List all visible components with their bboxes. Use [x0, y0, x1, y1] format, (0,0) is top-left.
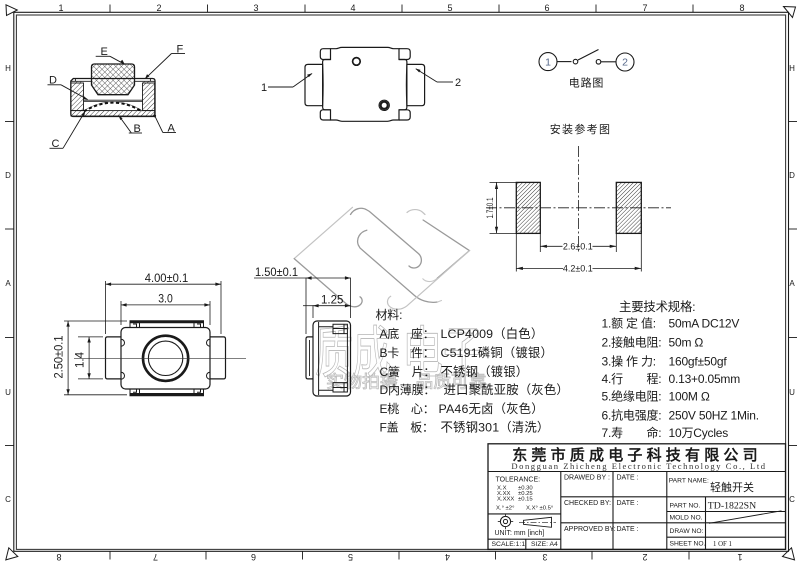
svg-text:TD-1822SN: TD-1822SN: [708, 500, 756, 511]
svg-text:C: C: [789, 495, 795, 504]
svg-text:APPROVED BY:: APPROVED BY:: [564, 526, 616, 533]
svg-text:A: A: [789, 279, 795, 288]
svg-text:1: 1: [737, 552, 742, 562]
svg-text:1.25: 1.25: [321, 295, 343, 307]
svg-text:0.13+0.05mm: 0.13+0.05mm: [669, 372, 741, 386]
svg-text:F盖 板：: F盖 板：: [380, 421, 434, 435]
svg-text:1 OF 1: 1 OF 1: [713, 541, 732, 548]
svg-text:安装参考图: 安装参考图: [550, 122, 612, 136]
svg-text:UNIT: mm [inch]: UNIT: mm [inch]: [495, 530, 545, 537]
svg-text:2: 2: [642, 552, 647, 562]
svg-text:1: 1: [545, 56, 551, 68]
svg-text:DATE :: DATE :: [617, 500, 639, 507]
svg-text:3: 3: [253, 3, 258, 13]
svg-text:7: 7: [153, 552, 158, 562]
svg-text:8: 8: [739, 3, 744, 13]
svg-text:材料:: 材料:: [376, 308, 403, 322]
svg-text:X.° ±2°: X.° ±2°: [496, 506, 514, 512]
svg-text:D内薄膜：: D内薄膜：: [380, 382, 436, 397]
svg-text:1.额 定 值:: 1.额 定 值:: [602, 316, 656, 331]
svg-text:DATE :: DATE :: [617, 475, 639, 482]
svg-text:8: 8: [56, 552, 61, 562]
svg-text:10万Cycles: 10万Cycles: [669, 426, 729, 440]
svg-text:H: H: [5, 64, 11, 73]
svg-text:不锈钢（镀银）: 不锈钢（镀银）: [441, 364, 529, 379]
svg-text:4: 4: [445, 552, 450, 562]
svg-text:3.操 作 力:: 3.操 作 力:: [602, 354, 656, 369]
svg-text:2.50±0.1: 2.50±0.1: [54, 336, 66, 379]
svg-text:C簧 片：: C簧 片：: [380, 364, 436, 379]
svg-text:3: 3: [542, 552, 547, 562]
svg-text:X.XXX: X.XXX: [497, 497, 514, 503]
svg-text:SCALE:1:1: SCALE:1:1: [492, 541, 526, 548]
svg-text:2.6±0.1: 2.6±0.1: [563, 242, 593, 252]
svg-text:X.X° ±0.5°: X.X° ±0.5°: [526, 506, 553, 512]
svg-text:B卡 件：: B卡 件：: [380, 346, 435, 360]
svg-text:4.00±0.1: 4.00±0.1: [145, 273, 189, 285]
svg-text:1.4: 1.4: [75, 351, 87, 368]
svg-text:Dongguan Zhicheng Electronic T: Dongguan Zhicheng Electronic Technology …: [511, 461, 766, 471]
svg-text:进口聚酰亚胺（灰色）: 进口聚酰亚胺（灰色）: [444, 382, 569, 397]
svg-text:主要技术规格:: 主要技术规格:: [619, 299, 695, 314]
svg-text:H: H: [789, 64, 795, 73]
svg-text:DRAWED BY :: DRAWED BY :: [564, 475, 610, 482]
svg-text:50mA DC12V: 50mA DC12V: [669, 317, 740, 331]
svg-text:7: 7: [642, 3, 647, 13]
svg-text:U: U: [789, 388, 795, 397]
svg-text:PART NO.: PART NO.: [670, 503, 701, 510]
svg-text:A底 座：: A底 座：: [380, 326, 435, 341]
svg-text:1.50±0.1: 1.50±0.1: [255, 267, 298, 279]
svg-text:U: U: [5, 388, 11, 397]
svg-text:轻触开关: 轻触开关: [710, 480, 754, 494]
svg-text:E桃 心：: E桃 心：: [380, 401, 435, 416]
svg-text:160gf±50gf: 160gf±50gf: [669, 355, 728, 369]
svg-text:1.7±0.1: 1.7±0.1: [485, 198, 495, 219]
svg-text:1: 1: [58, 3, 63, 13]
svg-text:2: 2: [156, 3, 161, 13]
svg-text:D: D: [5, 171, 11, 180]
svg-text:MOLD NO.: MOLD NO.: [670, 515, 703, 522]
svg-text:5.绝缘电阻:: 5.绝缘电阻:: [602, 389, 662, 404]
svg-text:PA46无卤（灰色）: PA46无卤（灰色）: [439, 401, 544, 416]
svg-text:CHECKED BY:: CHECKED BY:: [564, 500, 611, 507]
svg-text:PART NAME:: PART NAME:: [669, 478, 709, 485]
svg-text:2: 2: [622, 57, 628, 69]
svg-text:SHEET NO.: SHEET NO.: [670, 541, 706, 548]
svg-text:不锈钢301（清洗）: 不锈钢301（清洗）: [441, 420, 550, 435]
svg-text:A: A: [5, 279, 11, 288]
svg-text:TOLERANCE:: TOLERANCE:: [496, 477, 541, 484]
svg-text:2.接触电阻:: 2.接触电阻:: [602, 335, 662, 350]
svg-text:5: 5: [447, 3, 452, 13]
svg-text:C5191磷铜（镀银）: C5191磷铜（镀银）: [441, 345, 554, 360]
svg-text:3.0: 3.0: [158, 294, 173, 306]
svg-text:6: 6: [251, 552, 256, 562]
svg-text:100M Ω: 100M Ω: [669, 390, 710, 404]
svg-text:D: D: [789, 171, 795, 180]
svg-text:2: 2: [455, 77, 461, 89]
svg-text:4: 4: [350, 3, 355, 13]
svg-text:50m Ω: 50m Ω: [669, 336, 704, 350]
svg-text:6: 6: [544, 3, 549, 13]
svg-text:LCP4009（白色）: LCP4009（白色）: [441, 326, 544, 341]
svg-text:电路图: 电路图: [569, 77, 604, 90]
svg-text:C: C: [5, 495, 11, 504]
svg-text:DRAW NO:: DRAW NO:: [670, 528, 704, 535]
svg-text:DATE :: DATE :: [617, 526, 639, 533]
svg-text:4.2±0.1: 4.2±0.1: [563, 264, 593, 274]
svg-text:5: 5: [348, 552, 353, 562]
svg-text:250V 50HZ 1Min.: 250V 50HZ 1Min.: [669, 409, 759, 423]
svg-text:1: 1: [261, 82, 267, 94]
svg-text:4.行 程:: 4.行 程:: [602, 371, 662, 386]
svg-text:SIZE: A4: SIZE: A4: [531, 541, 558, 548]
svg-text:±0.15: ±0.15: [518, 497, 533, 503]
svg-text:7.寿 命:: 7.寿 命:: [602, 425, 662, 440]
svg-text:6.抗电强度:: 6.抗电强度:: [602, 408, 662, 423]
